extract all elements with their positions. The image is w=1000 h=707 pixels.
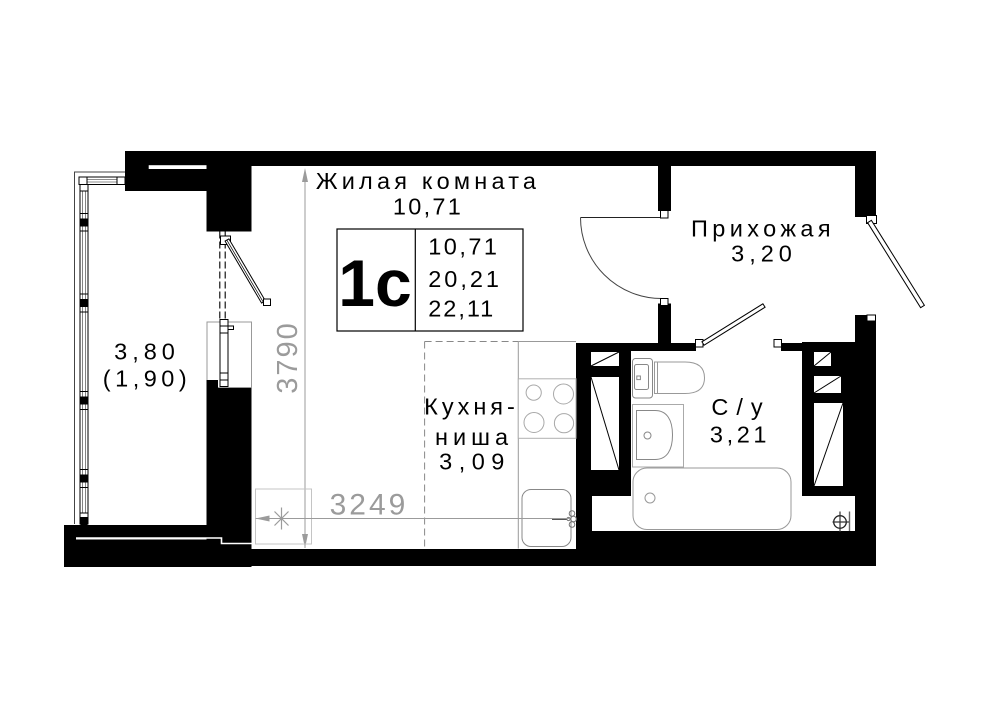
svg-text:22,11: 22,11	[428, 296, 495, 322]
svg-text:ниша: ниша	[435, 424, 513, 450]
svg-text:Прихожая: Прихожая	[691, 216, 835, 242]
svg-text:1с: 1с	[338, 246, 411, 320]
svg-text:3790: 3790	[272, 321, 304, 394]
svg-text:3,80: 3,80	[114, 339, 180, 365]
svg-text:3,21: 3,21	[710, 421, 770, 447]
svg-text:10,71: 10,71	[393, 194, 463, 220]
svg-text:10,71: 10,71	[428, 234, 499, 260]
svg-text:(1,90): (1,90)	[103, 366, 191, 392]
svg-text:С/у: С/у	[711, 394, 770, 420]
svg-text:3249: 3249	[330, 489, 409, 522]
svg-text:Жилая комната: Жилая комната	[316, 168, 540, 194]
svg-text:Кухня-: Кухня-	[424, 394, 519, 420]
svg-text:3,20: 3,20	[731, 241, 797, 267]
svg-text:3,09: 3,09	[439, 448, 511, 474]
svg-text:20,21: 20,21	[428, 266, 502, 292]
